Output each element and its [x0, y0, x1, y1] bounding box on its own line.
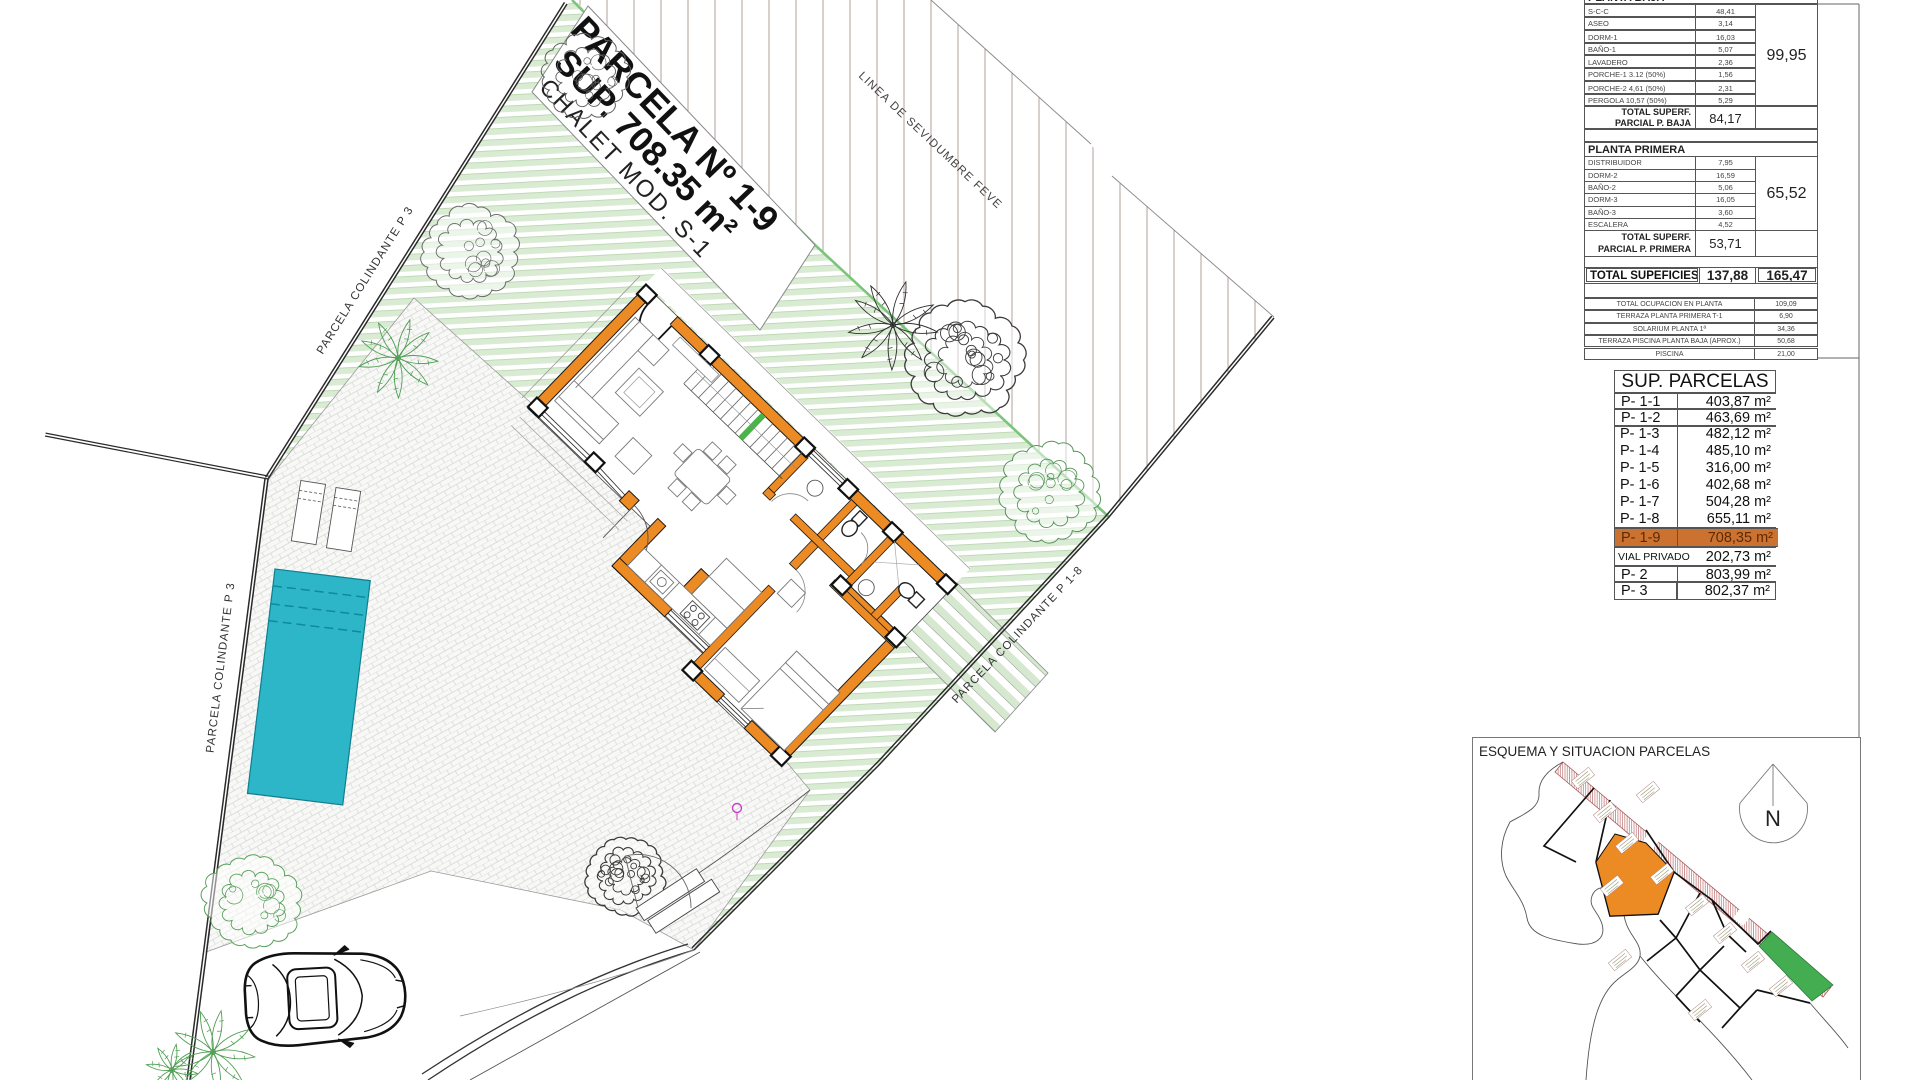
svg-text:N: N: [1765, 806, 1781, 831]
svg-text:ESQUEMA Y SITUACION PARCELAS: ESQUEMA Y SITUACION PARCELAS: [1479, 744, 1710, 759]
